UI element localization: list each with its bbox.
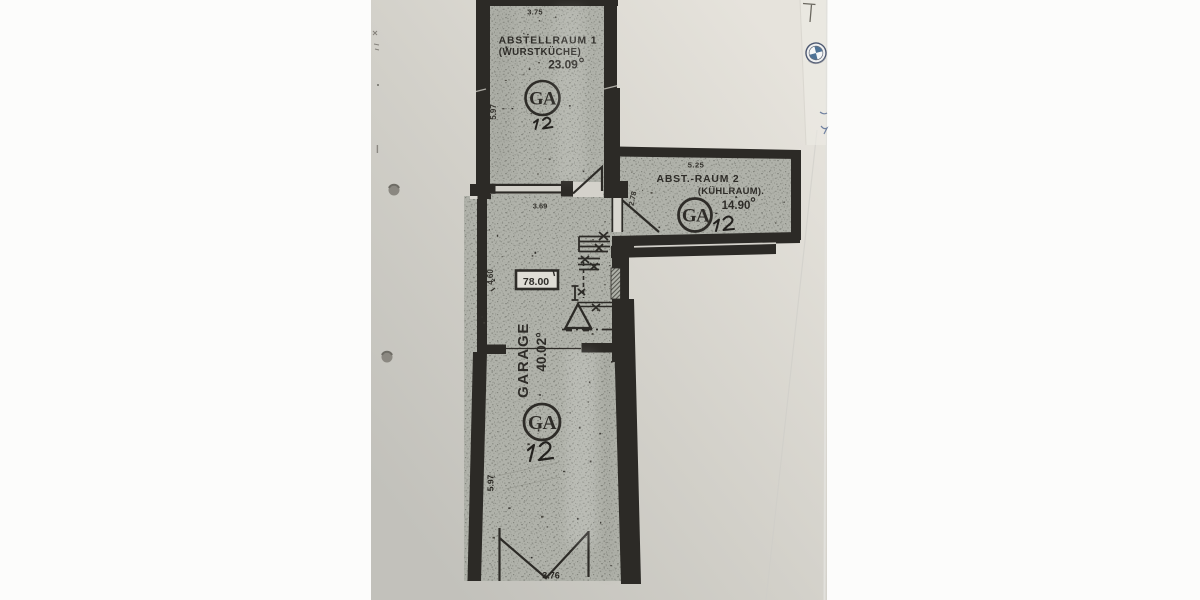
svg-text:5.25: 5.25 [688,161,705,170]
svg-text:GARAGE: GARAGE [515,322,532,398]
svg-text:78.00: 78.00 [523,276,549,288]
svg-text:3.75: 3.75 [527,8,542,17]
svg-text:GA: GA [529,90,557,110]
svg-text:(KÜHLRAUM).: (KÜHLRAUM). [698,185,764,196]
svg-text:4.60: 4.60 [486,269,495,285]
svg-text:3.69: 3.69 [533,202,548,211]
svg-text:GA: GA [528,413,557,434]
svg-text:3.76: 3.76 [542,571,560,581]
svg-text:40.02°: 40.02° [534,332,549,371]
svg-text:14.90: 14.90 [722,200,751,212]
svg-text:GA: GA [682,206,710,227]
svg-text:ABST.-RAUM 2: ABST.-RAUM 2 [657,174,740,185]
